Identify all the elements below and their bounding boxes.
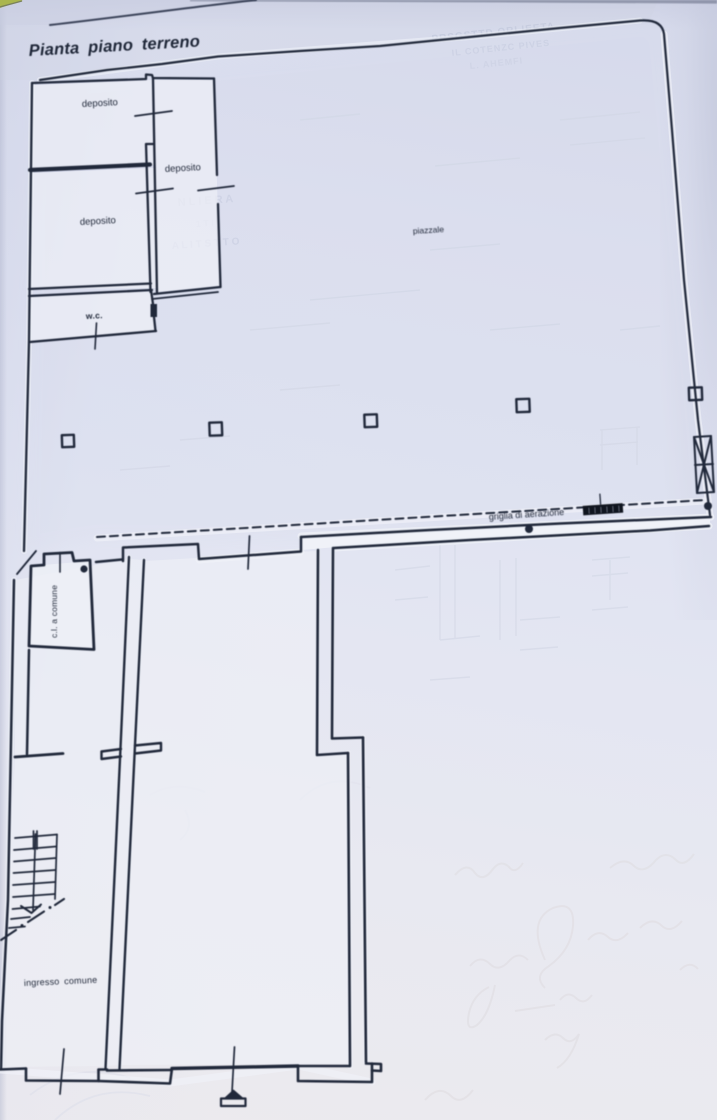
svg-text:deposito: deposito — [165, 162, 201, 175]
svg-text:deposito: deposito — [80, 215, 116, 228]
svg-text:c.l. a comune: c.l. a comune — [49, 585, 59, 638]
svg-text:w.c.: w.c. — [85, 310, 103, 321]
svg-text:deposito: deposito — [82, 97, 118, 110]
svg-text:piazzale: piazzale — [413, 224, 445, 236]
